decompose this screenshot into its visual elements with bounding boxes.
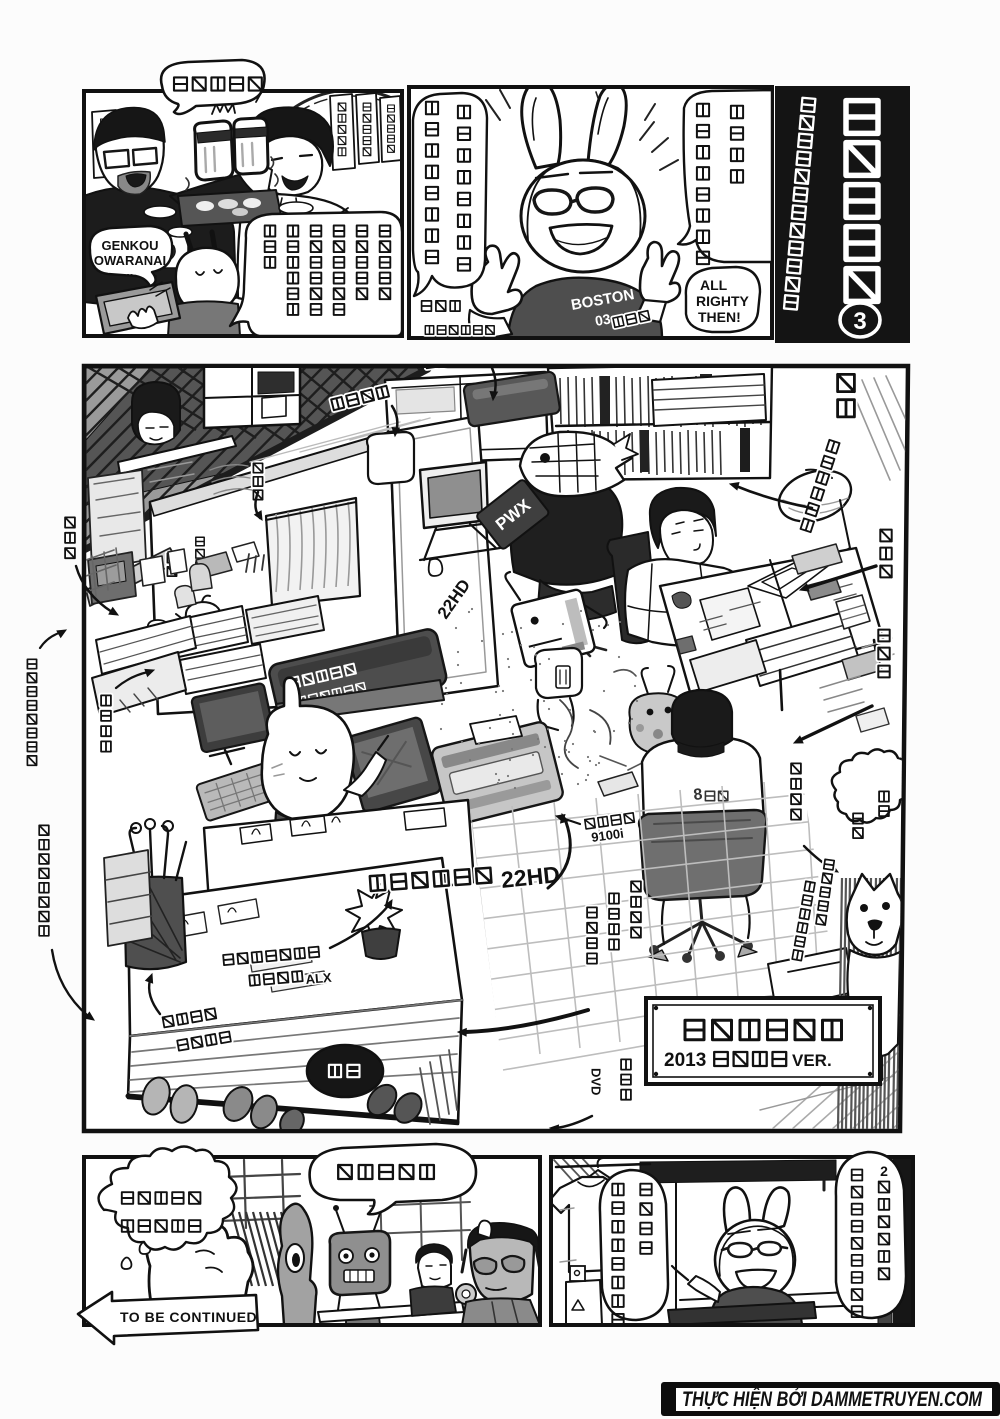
svg-text:DVD: DVD bbox=[589, 1068, 604, 1095]
svg-text:GENKOU: GENKOU bbox=[101, 238, 158, 253]
svg-text:ALL: ALL bbox=[700, 277, 728, 293]
svg-text:RIGHTY: RIGHTY bbox=[696, 293, 750, 309]
svg-text:2: 2 bbox=[880, 1163, 888, 1179]
svg-text:2013: 2013 bbox=[664, 1050, 706, 1071]
svg-text:ALX: ALX bbox=[305, 970, 333, 987]
svg-text:8: 8 bbox=[693, 786, 704, 804]
svg-text:VER.: VER. bbox=[792, 1051, 832, 1070]
svg-text:THỰC HIỆN BỞI DAMMETRUYEN.COM: THỰC HIỆN BỞI DAMMETRUYEN.COM bbox=[682, 1387, 982, 1411]
svg-text:3: 3 bbox=[853, 308, 866, 335]
svg-text:03: 03 bbox=[594, 310, 612, 328]
svg-text:THEN!: THEN! bbox=[698, 309, 741, 325]
svg-text:TO BE CONTINUED: TO BE CONTINUED bbox=[120, 1309, 257, 1325]
svg-text:...: ... bbox=[123, 264, 134, 279]
